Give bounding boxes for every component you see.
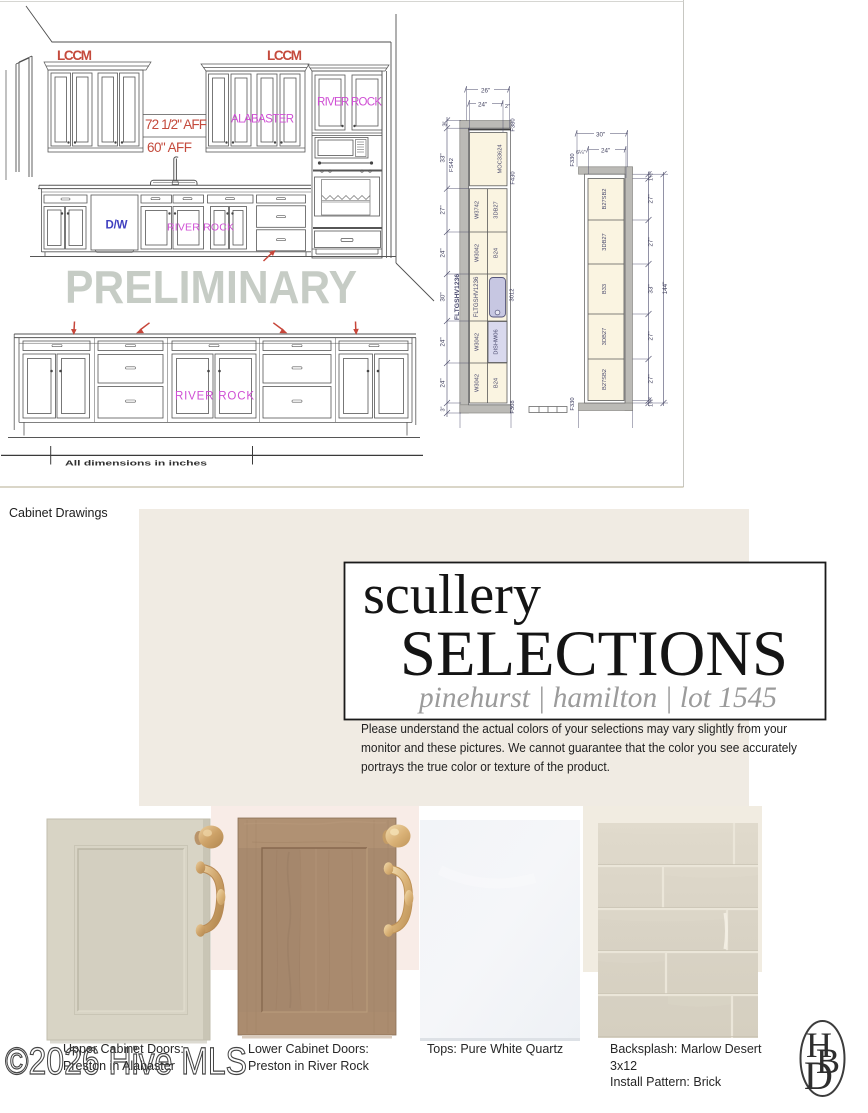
svg-text:24": 24" [601,148,610,155]
svg-text:72 1/2" AFF: 72 1/2" AFF [145,117,207,132]
svg-text:27": 27" [648,237,655,246]
svg-text:33": 33" [440,153,447,162]
svg-text:27": 27" [648,374,655,383]
svg-text:RIVER ROCK: RIVER ROCK [317,97,382,109]
svg-text:FLTGSHV1236: FLTGSHV1236 [474,276,480,317]
svg-text:Preston in River Rock: Preston in River Rock [248,1059,370,1073]
svg-text:scullery: scullery [363,564,541,626]
svg-text:1½": 1½" [648,397,655,407]
svg-text:27": 27" [648,331,655,340]
svg-text:24": 24" [440,378,447,387]
svg-text:©2026 Hive MLS: ©2026 Hive MLS [5,1041,247,1083]
svg-text:24": 24" [440,337,447,346]
svg-text:30": 30" [596,132,605,139]
svg-text:LCCM: LCCM [267,48,302,63]
svg-text:3DB27: 3DB27 [602,233,608,250]
svg-text:26": 26" [481,88,490,95]
svg-text:B27SB2: B27SB2 [602,369,608,390]
svg-text:D/W: D/W [106,220,128,232]
svg-text:3012: 3012 [510,289,516,302]
svg-text:portrays the true color or tex: portrays the true color or texture of th… [361,759,610,774]
svg-text:W3042: W3042 [475,333,481,351]
svg-text:W3042: W3042 [475,244,481,262]
svg-text:6¼": 6¼" [576,150,586,156]
svg-text:30": 30" [440,292,447,301]
svg-text:MOC33624: MOC33624 [498,144,504,173]
svg-text:pinehurst | hamilton | lot 154: pinehurst | hamilton | lot 1545 [417,681,777,714]
svg-text:B33: B33 [602,284,608,294]
svg-text:All dimensions in inches: All dimensions in inches [65,459,207,468]
svg-text:PRELIMINARY: PRELIMINARY [65,261,357,313]
svg-text:F308: F308 [510,400,516,413]
svg-text:LCCM: LCCM [57,48,92,63]
svg-text:F430: F430 [511,171,517,184]
svg-text:B24: B24 [494,248,500,258]
svg-text:F380: F380 [511,118,517,131]
svg-text:3DB27: 3DB27 [494,201,500,218]
svg-text:24": 24" [440,248,447,257]
svg-text:1½": 1½" [648,171,655,181]
svg-text:B27SB2: B27SB2 [602,189,608,210]
svg-text:Lower Cabinet Doors:: Lower Cabinet Doors: [248,1042,369,1056]
svg-text:Tops: Pure White Quartz: Tops: Pure White Quartz [427,1042,563,1056]
svg-text:27": 27" [440,205,447,214]
svg-text:FLTGSHV1236: FLTGSHV1236 [454,274,461,321]
svg-text:Backsplash: Marlow Desert: Backsplash: Marlow Desert [610,1042,762,1056]
svg-text:B24: B24 [494,378,500,388]
svg-text:3x12: 3x12 [610,1059,637,1073]
svg-text:27": 27" [648,194,655,203]
svg-text:RIVER ROCK: RIVER ROCK [167,222,234,234]
svg-text:Cabinet Drawings: Cabinet Drawings [9,506,108,520]
svg-text:SELECTIONS: SELECTIONS [400,618,788,690]
svg-text:F330: F330 [570,397,576,410]
svg-text:ALABASTER: ALABASTER [231,114,294,126]
svg-text:24": 24" [478,102,487,109]
svg-text:60" AFF: 60" AFF [147,140,192,155]
svg-text:3": 3" [443,121,449,126]
svg-text:W3042: W3042 [475,374,481,392]
svg-text:Please understand the actual c: Please understand the actual colors of y… [361,721,788,736]
svg-text:144": 144" [662,282,669,295]
svg-text:DISHW06: DISHW06 [494,329,500,354]
svg-text:2": 2" [505,104,510,110]
svg-text:3": 3" [441,406,447,411]
svg-text:33": 33" [648,284,655,293]
svg-text:F330: F330 [570,153,576,166]
svg-text:FS42: FS42 [449,158,455,172]
svg-text:W3742: W3742 [475,201,481,219]
svg-text:3DB27: 3DB27 [602,328,608,345]
svg-text:D: D [804,1053,833,1098]
svg-text:Install Pattern: Brick: Install Pattern: Brick [610,1075,722,1089]
svg-text:RIVER ROCK: RIVER ROCK [175,391,254,403]
svg-text:monitor and these pictures. We: monitor and these pictures. We cannot gu… [361,740,797,755]
